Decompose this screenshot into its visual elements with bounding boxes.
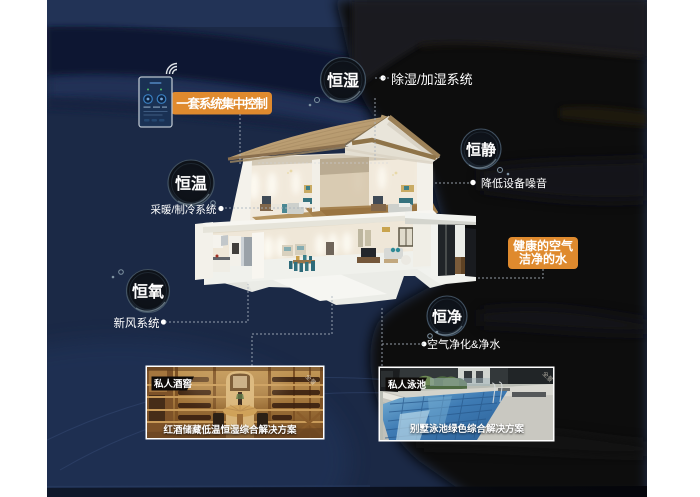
svg-text:恒静: 恒静 — [466, 141, 496, 159]
svg-text:恒温: 恒温 — [175, 174, 207, 193]
svg-text:空气净化&净水: 空气净化&净水 — [427, 337, 500, 351]
svg-text:一套系统集中控制: 一套系统集中控制 — [176, 96, 267, 111]
svg-text:采暖/制冷系统: 采暖/制冷系统 — [151, 203, 217, 216]
svg-text:除湿/加湿系统: 除湿/加湿系统 — [391, 72, 473, 87]
svg-text:健康的空气: 健康的空气 — [513, 238, 573, 253]
svg-text:恒氧: 恒氧 — [132, 282, 164, 301]
svg-text:私人酒窖: 私人酒窖 — [153, 378, 193, 390]
svg-text:别墅泳池绿色综合解决方案: 别墅泳池绿色综合解决方案 — [409, 423, 525, 435]
svg-text:红酒储藏低温恒湿综合解决方案: 红酒储藏低温恒湿综合解决方案 — [163, 424, 297, 436]
svg-text:私人泳池: 私人泳池 — [387, 379, 427, 391]
svg-text:恒净: 恒净 — [432, 308, 462, 326]
svg-text:恒湿: 恒湿 — [327, 71, 359, 90]
svg-text:降低设备噪音: 降低设备噪音 — [481, 176, 547, 190]
svg-text:新风系统: 新风系统 — [114, 316, 160, 330]
svg-text:洁净的水: 洁净的水 — [519, 251, 568, 266]
